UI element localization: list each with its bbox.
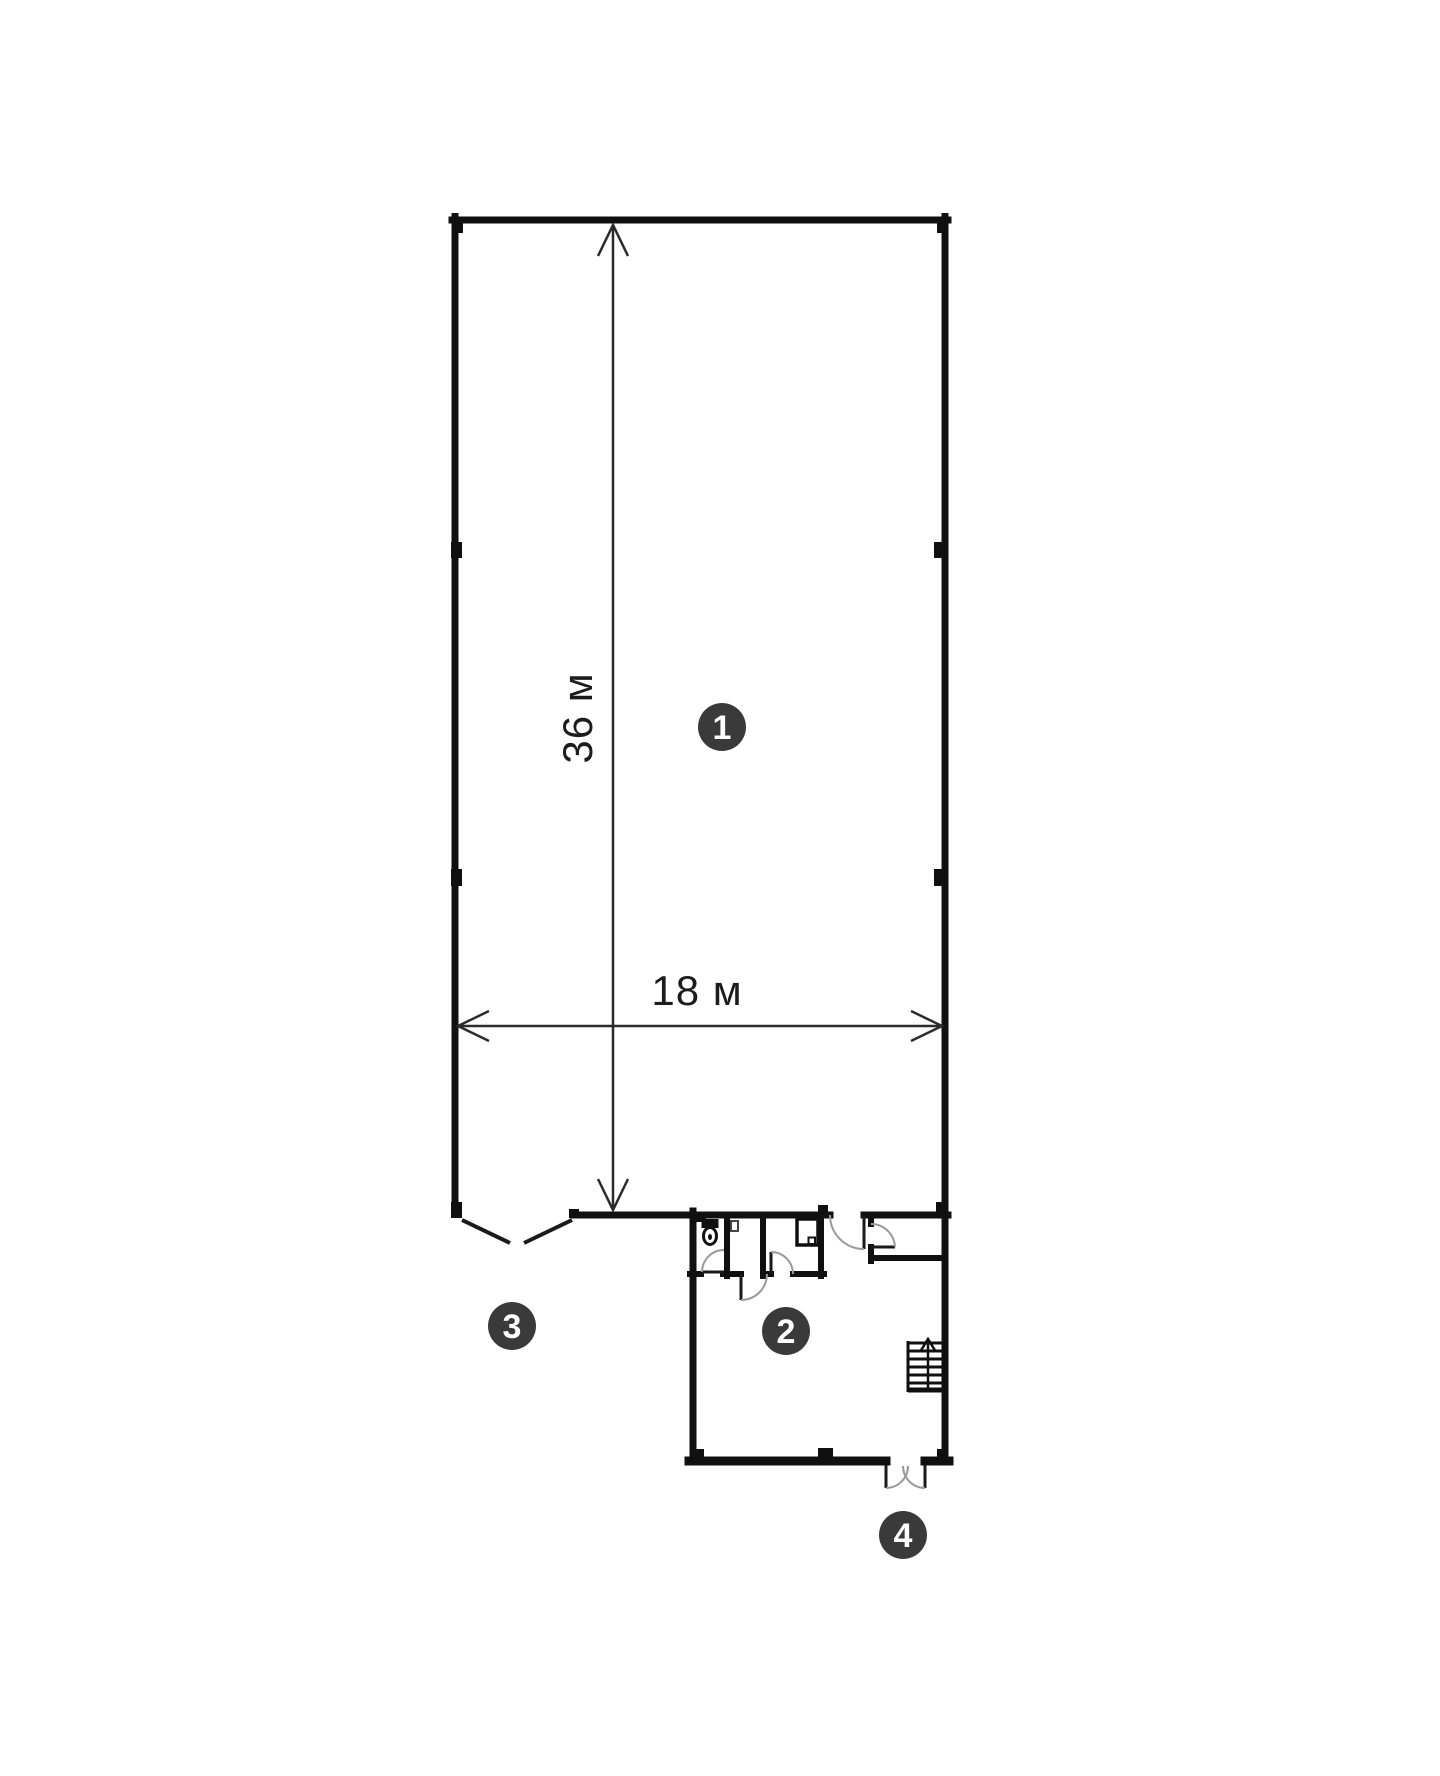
column-tick — [451, 542, 462, 558]
column-tick — [934, 869, 945, 886]
column-tick — [569, 1209, 579, 1218]
area-marker-3-number: 3 — [503, 1308, 522, 1346]
vertical-dimension-label: 36 м — [554, 672, 601, 763]
column-tick — [451, 1202, 462, 1218]
area-marker-1-number: 1 — [713, 709, 732, 747]
area-marker-2-number: 2 — [777, 1313, 796, 1351]
toilet-drain-icon — [708, 1234, 712, 1240]
wall-fixture-icon — [731, 1221, 738, 1231]
column-tick — [937, 1449, 948, 1458]
column-tick — [936, 1202, 945, 1213]
area-marker-4-number: 4 — [894, 1517, 913, 1555]
column-tick — [818, 1448, 833, 1457]
column-tick — [691, 1449, 704, 1458]
horizontal-dimension-label: 18 м — [651, 967, 742, 1014]
column-tick — [455, 223, 463, 233]
column-tick — [934, 542, 945, 558]
sink-drain-icon — [809, 1238, 816, 1245]
plan-background — [0, 0, 1440, 1776]
column-tick — [937, 223, 945, 233]
column-tick — [451, 869, 462, 886]
column-tick — [818, 1205, 828, 1215]
floor-plan-canvas: 36 м 18 м 1 2 3 4 — [0, 0, 1440, 1776]
floor-plan-page: 36 м 18 м 1 2 3 4 — [0, 0, 1440, 1776]
